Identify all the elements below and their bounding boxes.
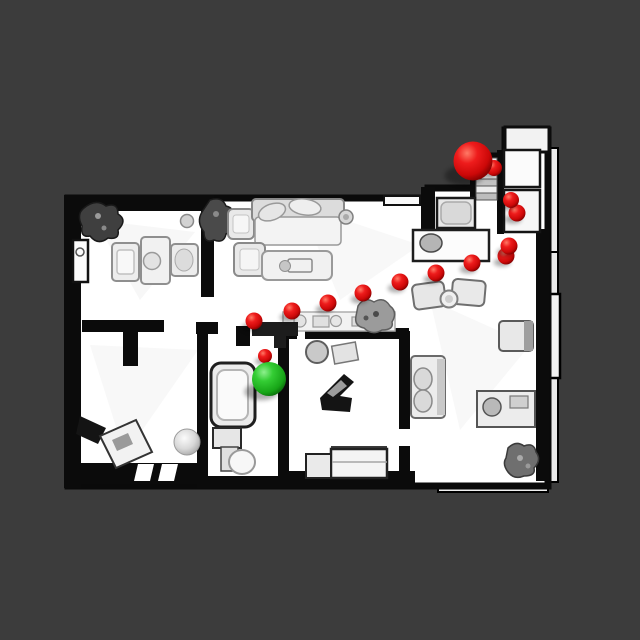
sofa-east-back <box>437 359 445 415</box>
wall-art-frame <box>73 240 88 282</box>
stair-step <box>476 186 497 193</box>
exercise-ball <box>174 429 200 455</box>
coffee-table <box>262 251 332 280</box>
goal-marker <box>454 142 493 181</box>
wall-bedroom-right-a <box>399 331 410 429</box>
wall-t-stub <box>123 326 138 366</box>
sofa-east-cushion <box>414 368 432 390</box>
waypoint-marker <box>503 192 519 208</box>
waypoint-marker <box>392 274 409 291</box>
wall-bedroom-left <box>278 338 289 482</box>
armchair-cushion <box>233 215 249 233</box>
waypoint-marker <box>355 285 372 302</box>
loveseat-cushion <box>144 253 161 270</box>
round-table-east-inner <box>445 295 453 303</box>
plant-top-left <box>79 202 123 241</box>
waypoint-marker <box>320 295 337 312</box>
armchair-cushion <box>117 250 134 274</box>
plant-highlight <box>517 455 523 461</box>
wall-kitchen-bit <box>196 322 218 334</box>
armchair-cushion <box>240 249 259 270</box>
plant-highlight <box>213 211 219 217</box>
waypoint-marker <box>501 238 518 255</box>
house-topdown-render <box>0 0 640 640</box>
wall-shelf <box>384 196 420 205</box>
wall-bedroom-right-b <box>399 446 410 480</box>
bathtub-basin <box>217 370 248 420</box>
waypoint-marker <box>258 349 272 363</box>
counter-plant-speck <box>364 316 369 321</box>
plant-highlight <box>102 226 107 231</box>
armchair-cushion <box>175 249 193 271</box>
waypoint-marker <box>464 255 481 272</box>
wall-bottom-left <box>64 463 204 484</box>
desk-monitor <box>510 396 528 408</box>
bedroom-office-chair <box>306 341 328 363</box>
round-side-table-inner <box>343 214 349 220</box>
waypoint-marker <box>246 313 263 330</box>
waypoint-marker <box>428 265 445 282</box>
ceiling-light <box>181 215 194 228</box>
island-chair <box>420 234 442 252</box>
wall-kitchen-step <box>421 187 435 233</box>
plant-highlight <box>95 213 101 219</box>
bedroom-side-table <box>332 342 359 364</box>
coffee-table-knot <box>280 261 291 272</box>
wall-bottom-bathroom <box>197 476 289 488</box>
landing-panel-upper <box>504 150 540 187</box>
wall-bathroom-left <box>197 333 208 481</box>
bathroom-sink <box>213 428 241 448</box>
agent-marker <box>252 362 286 396</box>
map-viewport[interactable] <box>0 0 640 640</box>
counter-plant-speck <box>373 311 379 317</box>
chair-right-wall-back <box>524 321 533 351</box>
waypoint-marker <box>284 303 301 320</box>
wall-right <box>536 229 549 481</box>
bedroom-cabinet <box>306 454 331 478</box>
sofa-east-cushion <box>414 390 432 412</box>
stair-step <box>476 193 497 200</box>
counter-dish <box>313 316 329 327</box>
toilet-bowl <box>229 450 255 474</box>
stove-top <box>441 202 471 224</box>
roof-protrusion-top-right <box>505 127 549 152</box>
counter-dish <box>331 316 342 327</box>
plant-highlight <box>526 464 531 469</box>
dresser <box>331 449 387 478</box>
desk-chair <box>483 398 501 416</box>
